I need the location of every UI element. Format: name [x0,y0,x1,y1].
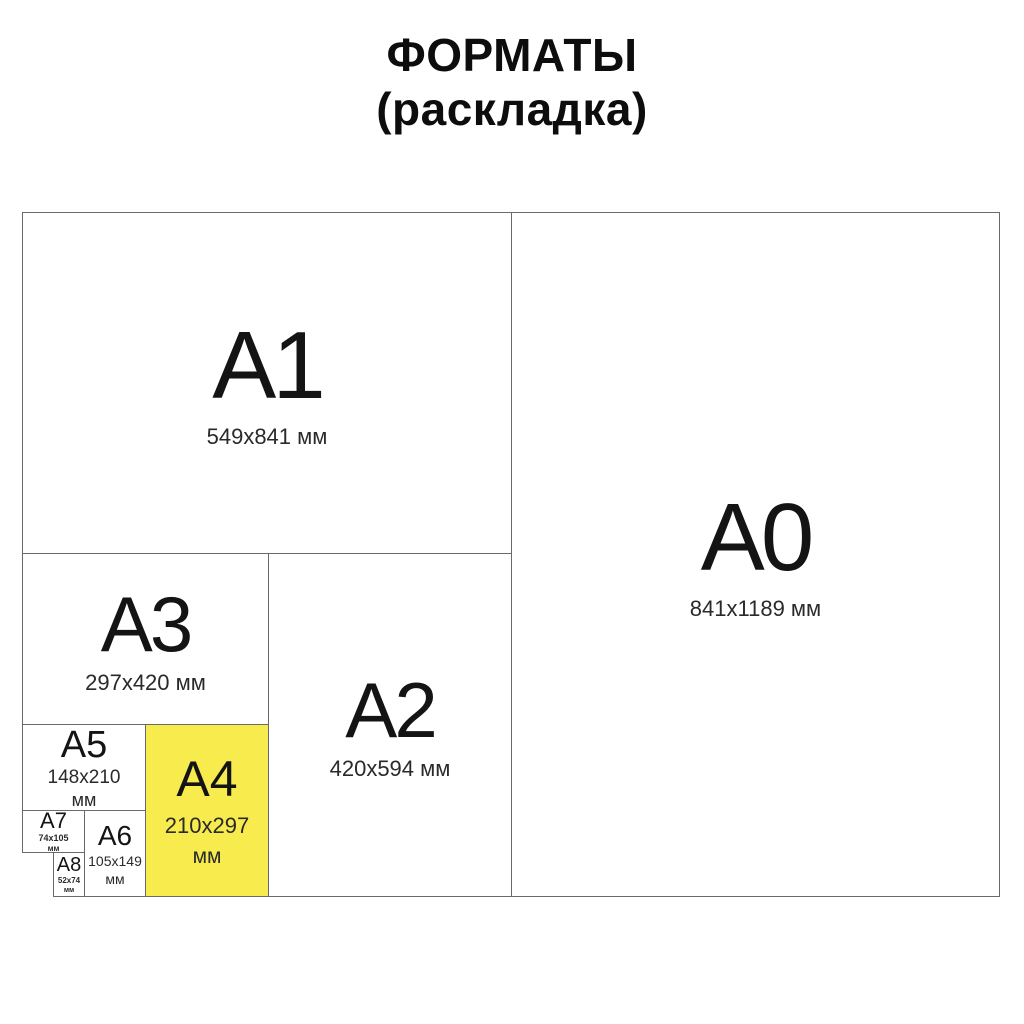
page-title: ФОРМАТЫ (раскладка) [0,28,1024,136]
format-a5-label: A5 [61,726,107,764]
format-a7-size: 74x105 [38,834,68,843]
format-a4-unit: мм [193,846,222,867]
format-a2-size: 420x594 мм [330,758,451,780]
page-title-line2: (раскладка) [0,82,1024,136]
format-a0-size: 841x1189 мм [690,598,821,620]
format-a6-label: A6 [98,822,132,850]
format-a5-size: 148x210 [48,768,121,787]
format-a8-size: 52x74 [58,877,80,885]
format-a3-label: A3 [101,585,190,663]
format-box-a6: A6 105x149 мм [84,810,146,897]
format-box-a8: A8 52x74 мм [53,852,85,897]
format-a8-label: A8 [57,855,81,875]
format-a1-label: A1 [212,318,321,414]
format-box-a7: A7 74x105 мм [22,810,85,853]
format-a1-size: 549x841 мм [207,426,328,448]
format-box-a5: A5 148x210 мм [22,724,146,811]
format-a6-unit: мм [105,872,124,886]
format-box-a3: A3 297x420 мм [22,553,269,725]
format-a7-label: A7 [40,810,67,832]
format-a8-unit: мм [64,887,74,894]
format-box-a1: A1 549x841 мм [22,212,512,554]
format-box-a2: A2 420x594 мм [268,553,512,897]
page-title-line1: ФОРМАТЫ [0,28,1024,82]
format-box-a4: A4 210x297 мм [145,724,269,897]
format-a4-label: A4 [176,754,237,804]
format-a6-size: 105x149 [88,854,142,868]
format-box-a0: A0 841x1189 мм [511,212,1000,897]
format-a0-label: A0 [701,490,810,586]
format-a4-size: 210x297 [165,815,249,837]
format-a3-size: 297x420 мм [85,672,206,694]
format-a2-label: A2 [345,671,434,749]
format-a5-unit: мм [72,791,97,809]
